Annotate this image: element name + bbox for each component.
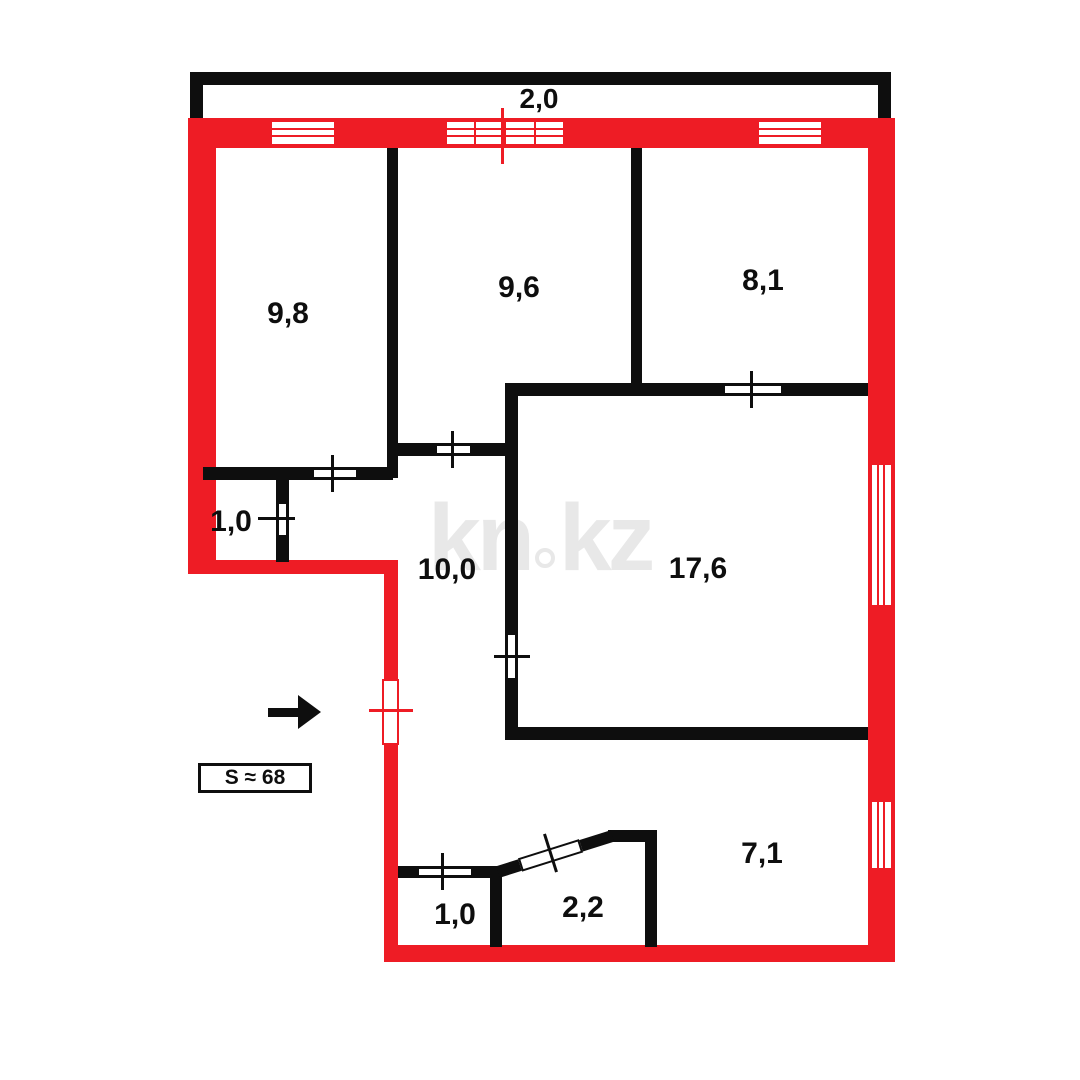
- room-label-2-2: 2,2: [562, 891, 604, 925]
- window-room-17-6-pane-line: [877, 465, 879, 605]
- window-balcony-door-pane-line: [474, 122, 476, 144]
- door-wc-1-0: [417, 867, 473, 877]
- window-hall-7-1-pane-line: [877, 802, 879, 868]
- wall-9-8-bottom: [203, 467, 393, 480]
- window-room-17-6: [870, 463, 893, 607]
- wall-9-6-8-1: [631, 148, 642, 390]
- wall-bath-2-2-right: [645, 830, 657, 947]
- total-area-badge: S ≈ 68: [198, 763, 312, 793]
- tick-door-17-6: [494, 655, 530, 658]
- tick-balcony-center: [501, 108, 504, 164]
- outer-wall-step: [188, 560, 398, 574]
- window-room-9-8: [270, 120, 336, 146]
- balcony-area-label: 2,0: [520, 83, 559, 115]
- window-balcony-door-pane-line: [534, 122, 536, 144]
- tick-door-8-1: [750, 371, 753, 408]
- window-room-9-8-pane-line: [272, 135, 334, 137]
- room-label-9-8: 9,8: [267, 297, 309, 331]
- tick-door-9-8: [331, 455, 334, 492]
- window-balcony-door: [445, 120, 565, 146]
- room-label-17-6: 17,6: [669, 552, 727, 586]
- window-room-8-1: [757, 120, 823, 146]
- room-label-1-0-bottom: 1,0: [434, 898, 476, 932]
- tick-door-closet: [258, 517, 295, 520]
- entrance-arrow-icon: [298, 695, 321, 729]
- window-hall-7-1: [870, 800, 893, 870]
- tick-door-wc: [441, 853, 444, 890]
- watermark-text-right: kz: [559, 485, 651, 591]
- door-entry: [382, 679, 399, 745]
- wall-9-8-9-6: [387, 148, 398, 478]
- window-room-17-6-pane-line: [883, 465, 885, 605]
- wall-17-6-left: [505, 383, 518, 738]
- watermark-dot-icon: [535, 548, 555, 568]
- wall-17-6-top: [510, 383, 868, 396]
- wall-wc-1-0-right: [490, 866, 502, 947]
- entrance-arrow-shaft: [268, 708, 300, 717]
- window-hall-7-1-pane-line: [883, 802, 885, 868]
- room-label-7-1: 7,1: [741, 837, 783, 871]
- tick-door-9-6: [451, 431, 454, 468]
- room-label-9-6: 9,6: [498, 271, 540, 305]
- room-label-10-0: 10,0: [418, 553, 476, 587]
- floor-plan: knkz 2,0 9,8 9,6 8,1 1,0 10,0 17,6 1,0 2…: [0, 0, 1080, 1080]
- window-room-8-1-pane-line: [759, 128, 821, 130]
- outer-wall-bottom: [384, 945, 895, 962]
- wall-17-6-bottom: [505, 727, 868, 740]
- room-label-8-1: 8,1: [742, 264, 784, 298]
- door-room-8-1: [723, 384, 783, 395]
- window-room-8-1-pane-line: [759, 135, 821, 137]
- window-room-9-8-pane-line: [272, 128, 334, 130]
- window-balcony-door-pane-line: [504, 122, 506, 144]
- door-room-9-8: [312, 468, 358, 479]
- room-label-1-0-left: 1,0: [210, 505, 252, 539]
- outer-wall-entry-side: [384, 560, 398, 962]
- tick-door-entry: [369, 709, 413, 712]
